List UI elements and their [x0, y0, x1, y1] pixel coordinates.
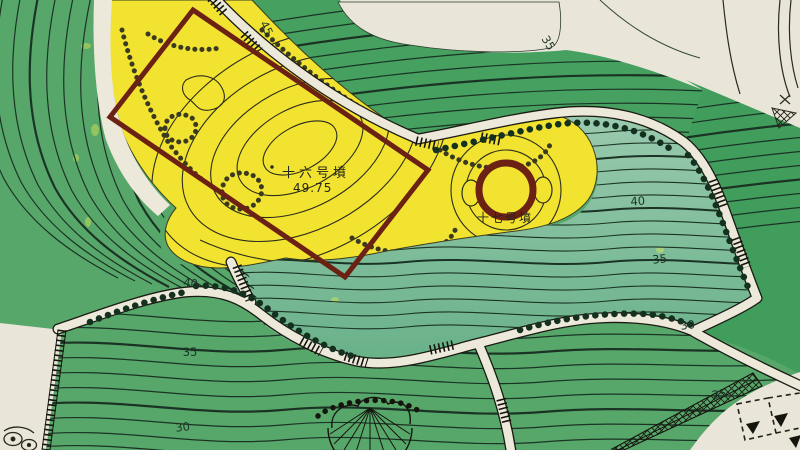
topographic-site-map: 十六号墳 49.75 十七号墳 45 35 40 35 30 40 35 30 …	[0, 0, 800, 450]
contour-label-35-left: 35	[183, 345, 198, 359]
label-tomb-16-elevation: 49.75	[293, 181, 332, 195]
tomb-17-circle	[479, 163, 533, 217]
spot-height-dot	[270, 165, 273, 168]
scanned-site-map-page: 十六号墳 49.75 十七号墳 45 35 40 35 30 40 35 30 …	[0, 0, 800, 450]
label-tomb-16: 十六号墳	[282, 166, 350, 181]
contour-label-35-right: 35	[652, 251, 668, 266]
contour-label-40-left: 40	[182, 275, 198, 291]
label-tomb-17: 十七号墳	[477, 211, 533, 225]
contour-label-30-right: 30	[680, 317, 696, 332]
contour-label-30-left: 30	[175, 419, 191, 434]
contour-label-25-bottomright: 25	[711, 386, 728, 402]
contour-label-40-right: 40	[630, 194, 646, 209]
